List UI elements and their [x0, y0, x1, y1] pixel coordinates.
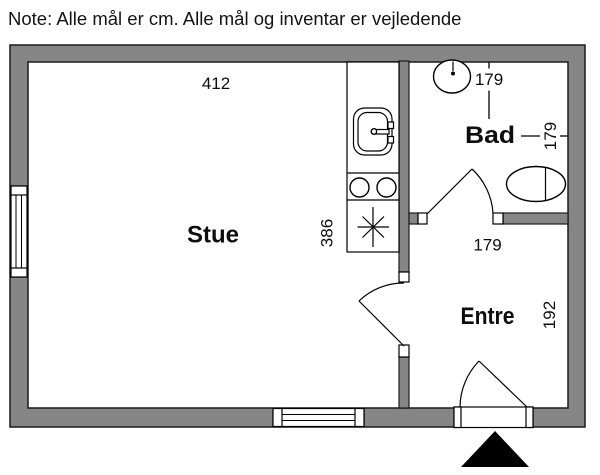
door-swing-arc [472, 169, 493, 213]
toilet-bowl [507, 167, 566, 202]
entrance-opening [454, 407, 533, 428]
left-wall-window [11, 186, 27, 277]
burner-right [377, 178, 396, 197]
toilet-icon [507, 167, 566, 202]
burner-left [350, 178, 369, 197]
room-label-bad: Bad [465, 122, 515, 149]
entrance-stub-left [454, 407, 461, 428]
entrance-door [460, 361, 527, 407]
dim-stue-width: 412 [202, 74, 230, 93]
entrance-threshold [454, 407, 533, 428]
window-end-bottom [11, 268, 27, 277]
wall-bad-entre-left [409, 213, 418, 224]
window-end-right [355, 409, 364, 427]
window-frame [273, 409, 364, 427]
sink-tap-handle [388, 122, 394, 129]
sink-tap-handle [388, 137, 394, 144]
basin-drain [451, 72, 455, 76]
door-swing-arc [460, 361, 479, 407]
door-leaf [479, 361, 527, 407]
door-swing-arc [359, 283, 404, 301]
room-label-stue: Stue [187, 222, 239, 249]
stue-door-stub-bottom [399, 345, 409, 357]
bottom-wall-window [273, 409, 364, 427]
wall-stue-bad-upper [399, 61, 409, 272]
bad-door-stub-left [418, 213, 427, 224]
dim-bad-depth: 179 [541, 122, 560, 150]
dim-stue-depth: 386 [318, 219, 337, 247]
window-end-left [273, 409, 282, 427]
floor-plan-page: Note: Alle mål er cm. Alle mål og invent… [0, 0, 600, 475]
window-end-top [11, 186, 27, 195]
wall-stue-entre-lower [399, 357, 409, 408]
entrance-arrow-icon [461, 431, 529, 467]
sink-faucet [377, 130, 390, 135]
stue-door-stub-top [399, 272, 409, 282]
interior-walls [399, 61, 568, 408]
floor-plan-drawing: Stue Bad Entre 412 386 179 179 179 192 [0, 0, 600, 475]
door-leaf [427, 169, 472, 214]
bad-door [427, 169, 493, 214]
dim-entre-depth: 192 [540, 301, 559, 329]
kitchen-unit [347, 62, 399, 252]
door-leaf [359, 301, 404, 346]
dim-bad-width: 179 [475, 70, 503, 89]
dim-entre-width: 179 [473, 236, 501, 255]
washbasin-icon [434, 60, 471, 93]
basin-bowl [434, 60, 471, 93]
room-label-entre: Entre [461, 303, 515, 330]
bad-door-stub-right [493, 213, 503, 224]
stue-entre-door [359, 283, 404, 346]
wall-bad-entre-right [503, 213, 568, 224]
window-frame [11, 186, 27, 277]
entrance-stub-right [526, 407, 533, 428]
